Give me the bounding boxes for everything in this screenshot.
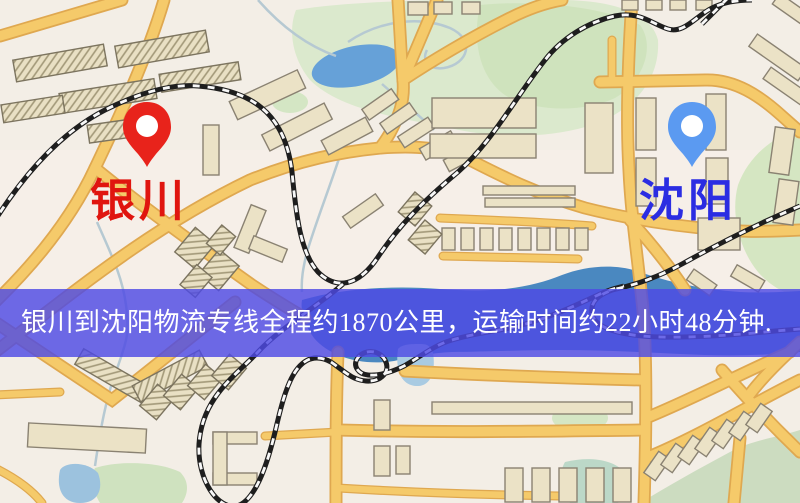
destination-pin-icon [666,101,718,168]
origin-label: 银川 [90,179,188,224]
origin-pin-icon [121,101,173,168]
pond [59,464,100,503]
logistics-route-map: 银川 沈阳 银川到沈阳物流专线全程约1870公里，运输时间约22小时48分钟. [0,0,800,503]
route-info-text: 银川到沈阳物流专线全程约1870公里，运输时间约22小时48分钟. [21,307,772,338]
route-info-banner: 银川到沈阳物流专线全程约1870公里，运输时间约22小时48分钟. [0,289,800,357]
destination-label: 沈阳 [639,179,737,224]
map-canvas [0,0,800,503]
